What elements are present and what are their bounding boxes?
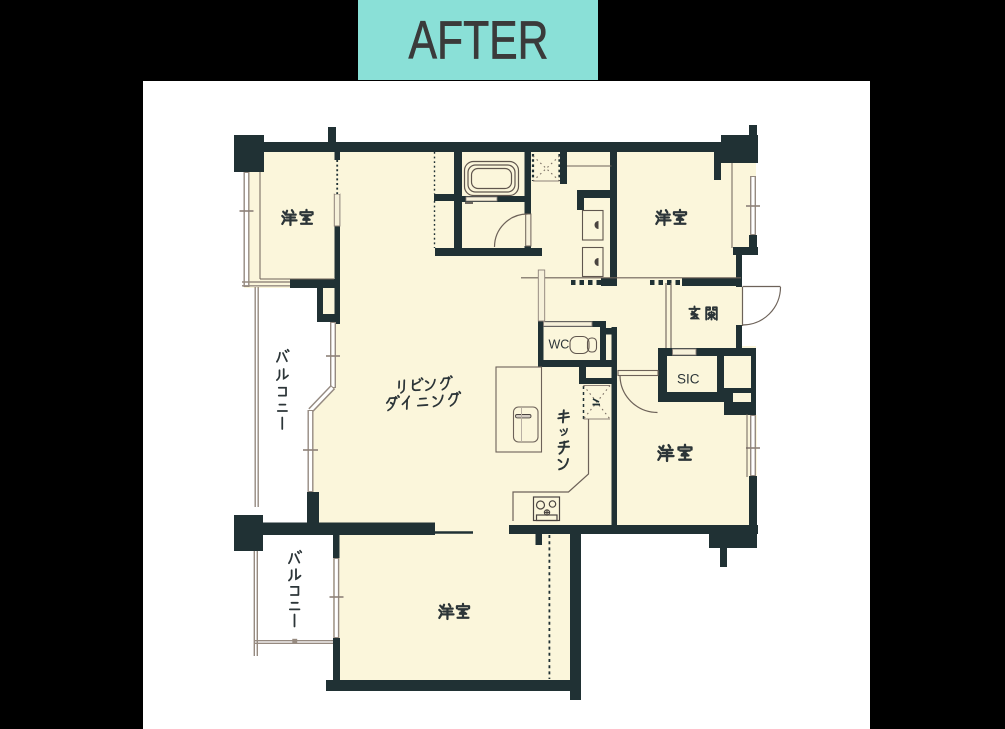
svg-text:AFTER: AFTER	[409, 11, 549, 71]
svg-text:SIC: SIC	[677, 372, 700, 387]
svg-text:WC: WC	[549, 338, 570, 352]
